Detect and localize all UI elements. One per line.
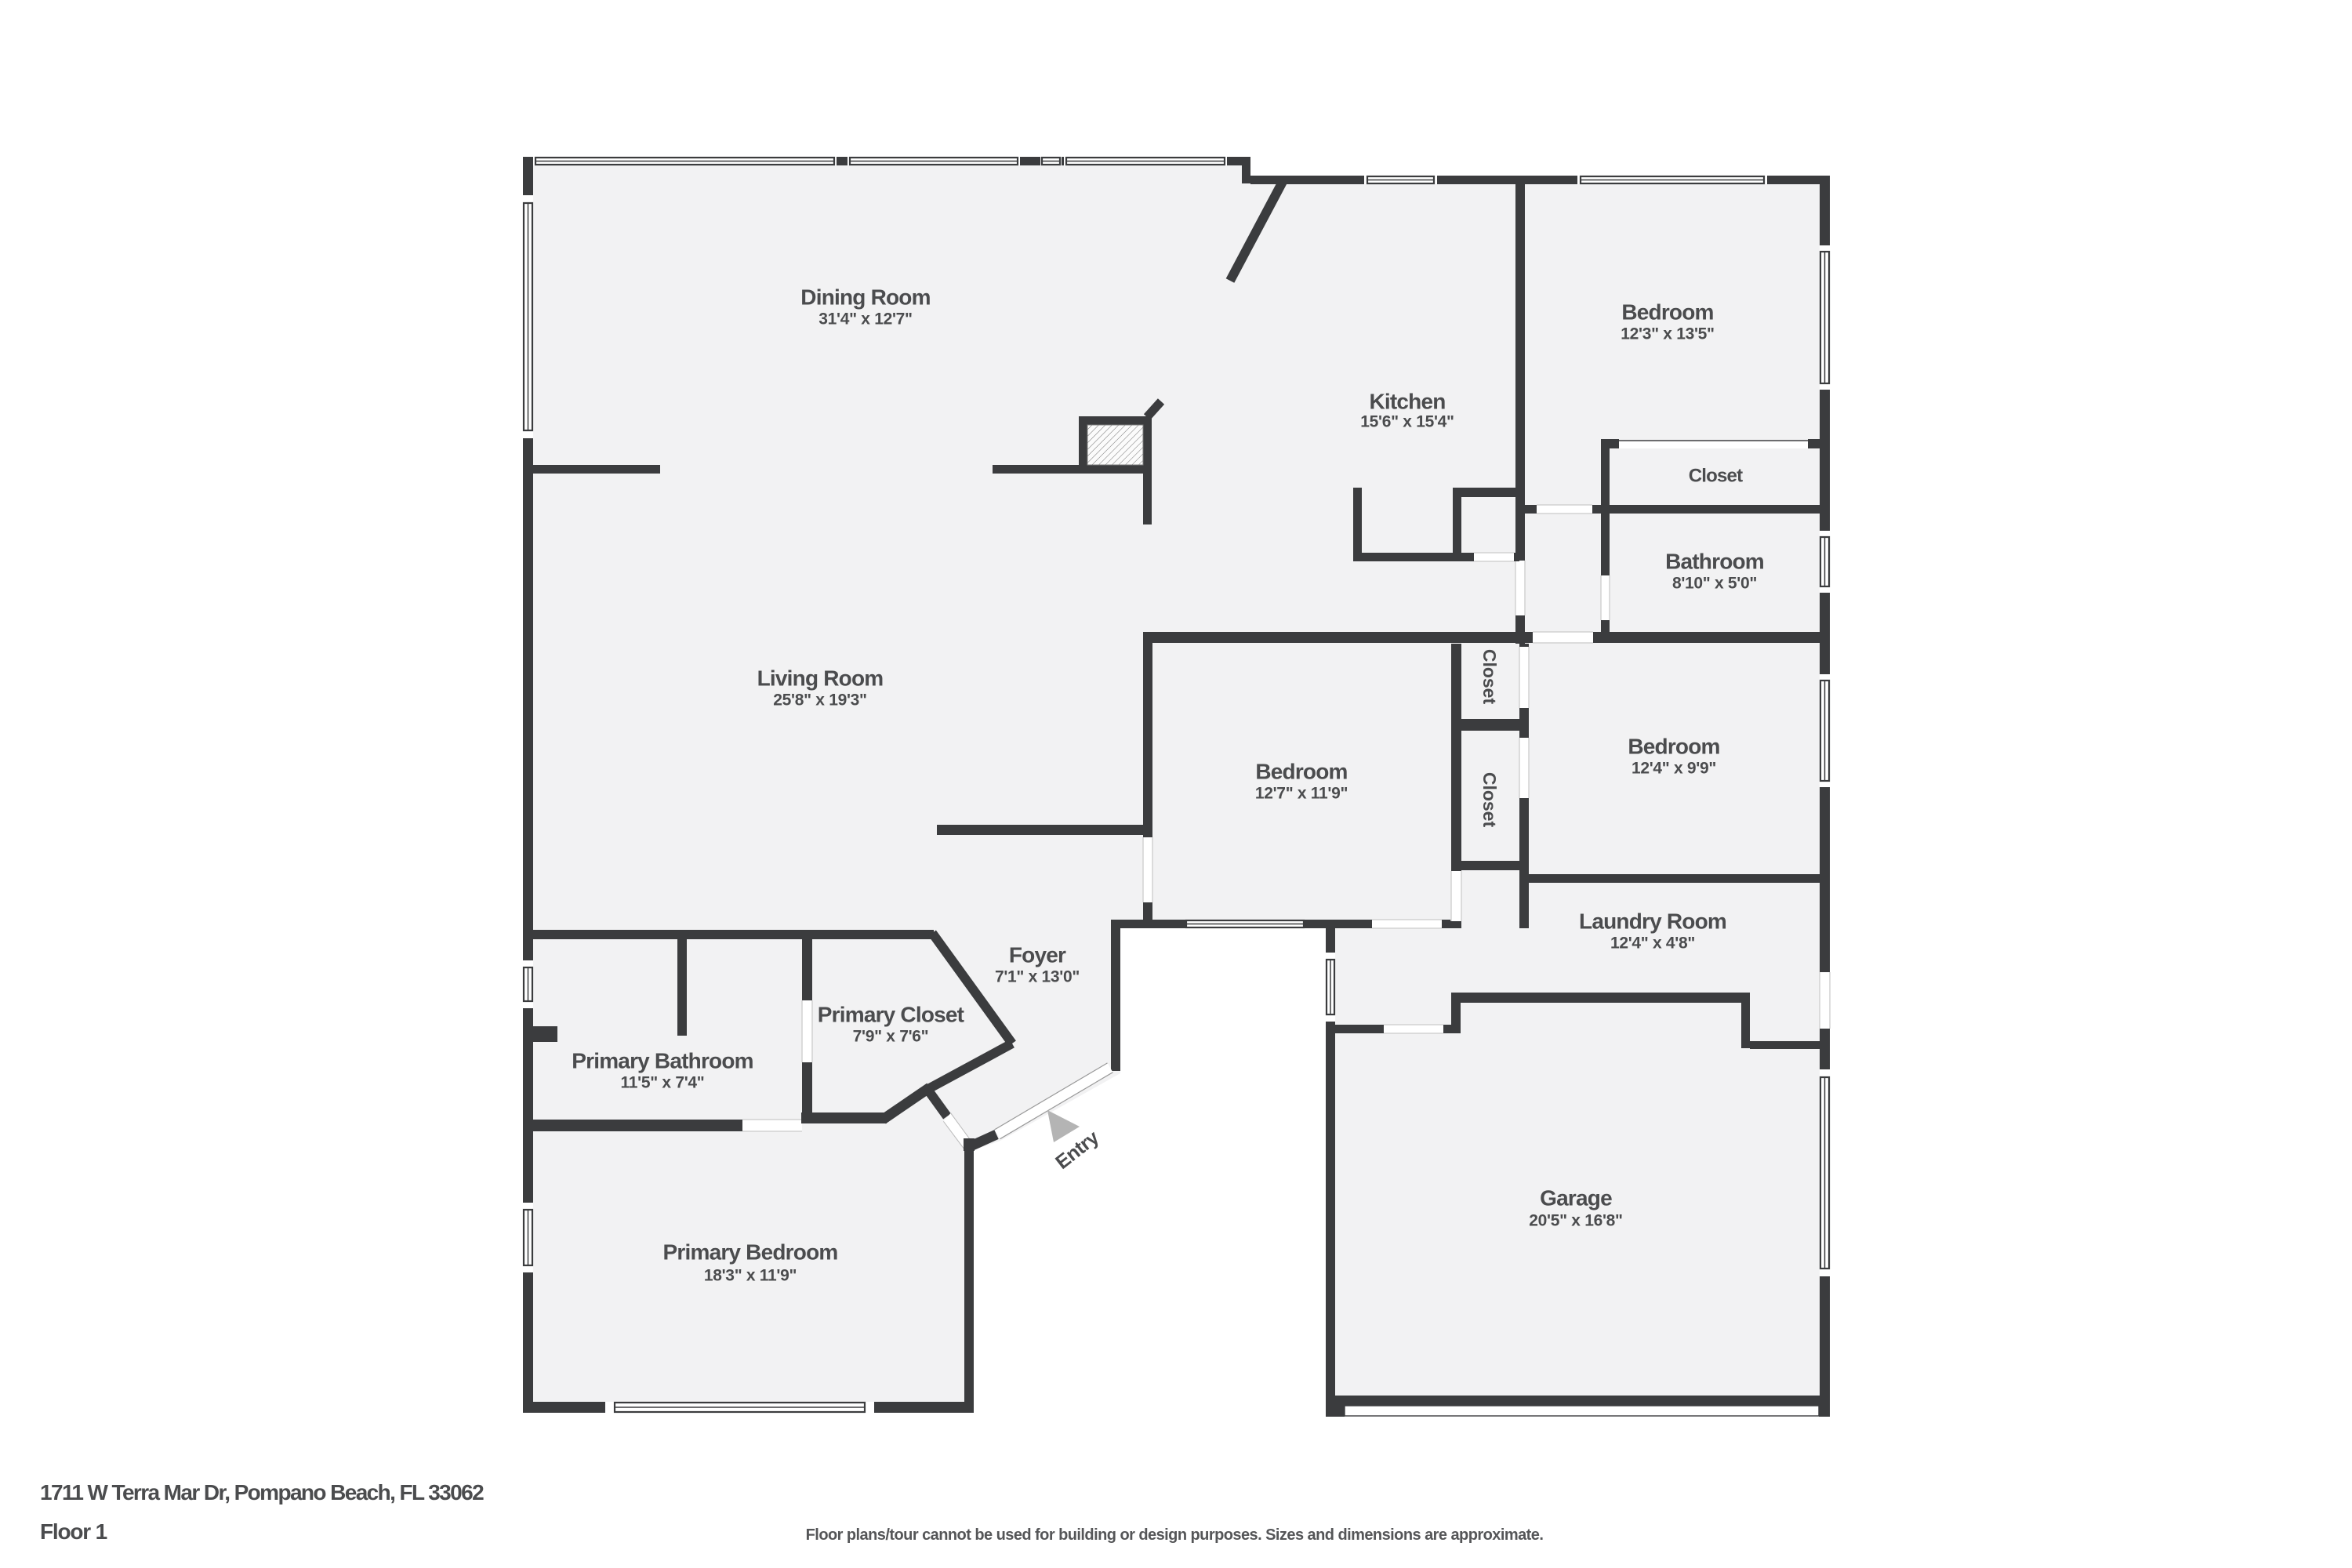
- svg-text:Floor 1: Floor 1: [40, 1519, 107, 1544]
- svg-text:Closet: Closet: [1689, 466, 1743, 487]
- svg-text:Primary Closet: Primary Closet: [818, 1003, 964, 1027]
- svg-text:Primary Bathroom: Primary Bathroom: [572, 1049, 753, 1073]
- svg-text:1711 W Terra Mar Dr, Pompano B: 1711 W Terra Mar Dr, Pompano Beach, FL 3…: [40, 1480, 484, 1504]
- svg-text:12'7" x 11'9": 12'7" x 11'9": [1255, 785, 1348, 803]
- svg-text:Floor plans/tour cannot be use: Floor plans/tour cannot be used for buil…: [806, 1526, 1544, 1544]
- svg-text:8'10" x 5'0": 8'10" x 5'0": [1672, 575, 1757, 593]
- svg-text:Closet: Closet: [1479, 772, 1500, 828]
- svg-text:25'8" x 19'3": 25'8" x 19'3": [773, 691, 866, 710]
- svg-text:12'4" x 9'9": 12'4" x 9'9": [1632, 760, 1716, 778]
- svg-text:Living Room: Living Room: [757, 666, 884, 691]
- svg-text:Bedroom: Bedroom: [1255, 760, 1347, 784]
- svg-text:Primary Bedroom: Primary Bedroom: [663, 1240, 838, 1265]
- svg-text:Laundry Room: Laundry Room: [1579, 909, 1726, 934]
- svg-text:Bathroom: Bathroom: [1665, 550, 1764, 574]
- svg-text:12'4" x 4'8": 12'4" x 4'8": [1610, 935, 1695, 953]
- svg-text:Bedroom: Bedroom: [1621, 300, 1713, 325]
- svg-text:Garage: Garage: [1540, 1186, 1612, 1210]
- svg-text:20'5" x 16'8": 20'5" x 16'8": [1529, 1212, 1622, 1230]
- svg-text:Foyer: Foyer: [1009, 943, 1066, 967]
- svg-text:18'3" x 11'9": 18'3" x 11'9": [704, 1267, 797, 1285]
- svg-text:12'3" x 13'5": 12'3" x 13'5": [1621, 325, 1714, 343]
- svg-text:31'4" x 12'7": 31'4" x 12'7": [818, 310, 912, 328]
- svg-text:Kitchen: Kitchen: [1369, 390, 1445, 414]
- svg-text:7'1" x 13'0": 7'1" x 13'0": [995, 968, 1080, 986]
- svg-text:15'6" x 15'4": 15'6" x 15'4": [1360, 413, 1454, 431]
- svg-text:Closet: Closet: [1479, 649, 1500, 705]
- svg-text:7'9" x 7'6": 7'9" x 7'6": [853, 1028, 929, 1046]
- svg-text:Dining Room: Dining Room: [800, 285, 930, 310]
- svg-text:Bedroom: Bedroom: [1628, 735, 1719, 759]
- svg-text:11'5" x 7'4": 11'5" x 7'4": [621, 1074, 705, 1092]
